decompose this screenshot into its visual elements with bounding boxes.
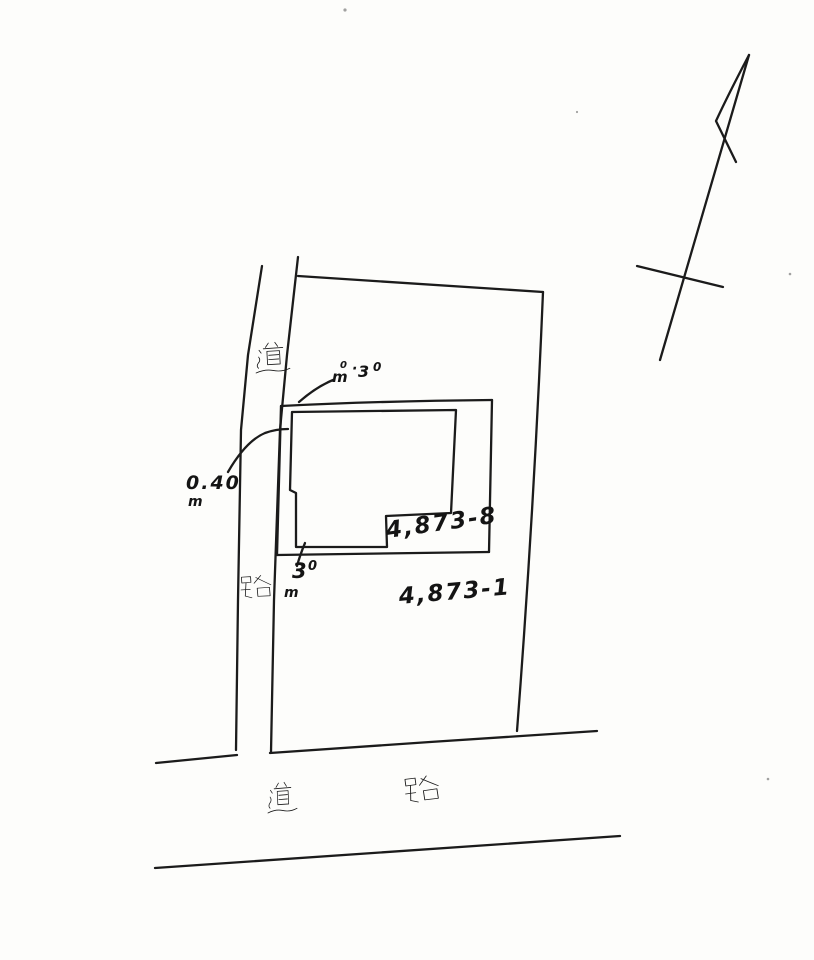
bottom-road-bottom-edge	[155, 836, 620, 868]
bottom-road-top-edge-right	[270, 731, 597, 753]
parcel-4873-1-outline	[298, 276, 543, 731]
vertical-road-right-edge	[271, 257, 298, 752]
leader-top-gap	[299, 380, 333, 402]
dimension-bottom-gap: 3 0 m	[284, 559, 330, 603]
dimension-left-gap: 0.40 m	[186, 472, 246, 514]
bottom-road-label-left	[268, 782, 297, 813]
bottom-road-label-right	[404, 775, 439, 803]
north-arrow-tick	[637, 266, 723, 287]
bottom-road	[155, 731, 620, 868]
sub-parcel-top	[281, 400, 492, 406]
dimension-left-unit: m	[188, 494, 203, 510]
dimension-bottom-unit: m	[284, 585, 299, 601]
dimension-bottom-digit-2: 0	[308, 559, 317, 574]
dimension-bottom-digit-1: 3	[292, 559, 307, 583]
bottom-road-top-edge-left	[156, 755, 237, 763]
dimension-left-value: 0.40	[186, 472, 241, 494]
dimension-top-dot: ·	[352, 361, 357, 377]
dimension-top-gap: 0 m · 3 0	[331, 360, 393, 392]
parcel-east-boundary	[517, 292, 543, 731]
sub-parcel-bottom	[277, 552, 489, 555]
survey-sketch-page: 0 m · 3 0 0.40 m 3 0 m 4,873-8 4,873-1	[0, 0, 814, 960]
north-arrow-icon	[637, 55, 749, 360]
north-arrow-shaft	[660, 55, 749, 360]
vertical-road-label-bottom	[241, 575, 271, 597]
sketch-canvas	[0, 0, 814, 960]
dimension-top-digit-1: 3	[358, 362, 369, 381]
paper-speck	[343, 8, 791, 780]
dimension-top-digit-2: 0	[373, 360, 381, 374]
dimension-top-unit: m	[332, 368, 348, 386]
parcel-north-boundary	[298, 276, 543, 292]
